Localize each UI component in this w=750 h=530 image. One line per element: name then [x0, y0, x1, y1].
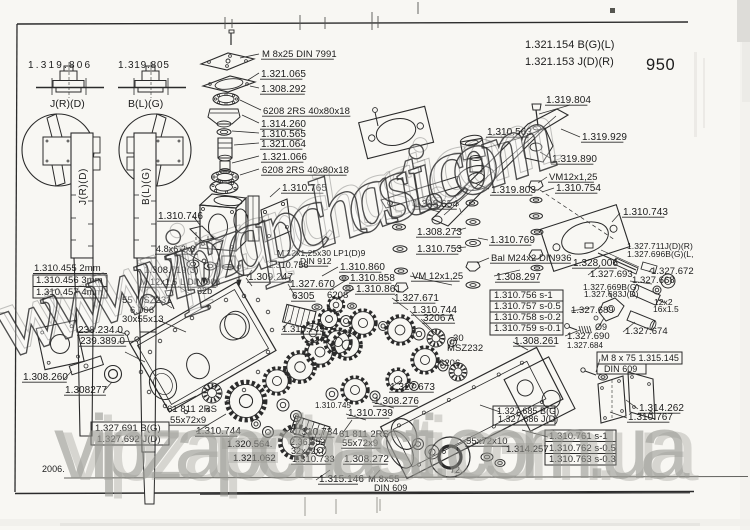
svg-text:1.310.759 s-0.1: 1.310.759 s-0.1 — [494, 323, 561, 334]
svg-text:1.327.683J(D): 1.327.683J(D) — [584, 289, 639, 299]
svg-text:1.310.745: 1.310.745 — [282, 324, 325, 335]
svg-text:1.308.297: 1.308.297 — [496, 272, 541, 283]
svg-text:1.319.805: 1.319.805 — [118, 60, 170, 71]
svg-text:1.308.261: 1.308.261 — [514, 336, 559, 347]
svg-text:B(L)(G): B(L)(G) — [128, 98, 163, 110]
svg-text:DIN 609: DIN 609 — [604, 364, 637, 374]
svg-text:1.308.260: 1.308.260 — [23, 372, 68, 383]
svg-text:1.310.769: 1.310.769 — [490, 235, 535, 246]
svg-text:1.310.753: 1.310.753 — [417, 244, 462, 255]
svg-text:1.310.858: 1.310.858 — [350, 273, 395, 284]
svg-text:1.321.065: 1.321.065 — [261, 69, 306, 80]
svg-text:1.310.743: 1.310.743 — [623, 207, 668, 218]
svg-text:1.308.292: 1.308.292 — [261, 84, 306, 95]
svg-text:1.319.929: 1.319.929 — [582, 132, 627, 143]
svg-text:1.327.673: 1.327.673 — [390, 382, 435, 393]
svg-text:1.319.804: 1.319.804 — [546, 95, 591, 106]
svg-text:1.328.006: 1.328.006 — [573, 258, 618, 269]
svg-text:3206 A: 3206 A — [423, 313, 455, 324]
svg-text:1.321.064: 1.321.064 — [261, 139, 306, 150]
svg-text:1.327.674: 1.327.674 — [625, 326, 668, 337]
svg-text:1.327.670: 1.327.670 — [290, 279, 335, 290]
svg-text:vipzapchasti.com.ua: vipzapchasti.com.ua — [63, 400, 700, 500]
svg-text:1.310.860: 1.310.860 — [340, 262, 385, 273]
svg-text:1.321.153 J(D)(R): 1.321.153 J(D)(R) — [525, 56, 614, 68]
svg-text:M 8x25 DIN 7991: M 8x25 DIN 7991 — [262, 49, 337, 60]
svg-text:950: 950 — [646, 56, 675, 74]
svg-text:B(L)(G): B(L)(G) — [141, 167, 152, 205]
svg-text:1.310.754: 1.310.754 — [556, 183, 601, 194]
svg-text:1.308277: 1.308277 — [65, 385, 107, 396]
svg-text:VM 12x1,25: VM 12x1,25 — [412, 271, 463, 282]
svg-text:1.321.154 B(G)(L): 1.321.154 B(G)(L) — [525, 39, 615, 51]
svg-text:6305: 6305 — [292, 291, 315, 302]
svg-text:6206: 6206 — [439, 358, 460, 369]
svg-text:1.327.689: 1.327.689 — [571, 305, 614, 316]
svg-text:1.310.756 s-1: 1.310.756 s-1 — [494, 290, 553, 301]
svg-text:16x1.5: 16x1.5 — [653, 304, 679, 314]
svg-text:1.327.684: 1.327.684 — [567, 341, 604, 350]
svg-text:6208: 6208 — [327, 290, 348, 301]
svg-text:1.319.890: 1.319.890 — [552, 154, 597, 165]
svg-text:M 8 x 75 1.315.145: M 8 x 75 1.315.145 — [601, 353, 679, 363]
svg-text:MSZ232: MSZ232 — [447, 343, 483, 354]
svg-text:J(R)(D): J(R)(D) — [78, 168, 89, 205]
svg-text:1.319.806: 1.319.806 — [28, 60, 92, 71]
svg-text:1.310.758 s-0.2: 1.310.758 s-0.2 — [494, 312, 561, 323]
svg-text:Bal M24x2 DIN936: Bal M24x2 DIN936 — [491, 253, 572, 264]
svg-text:J(R)(D): J(R)(D) — [50, 98, 85, 110]
svg-text:1.327.696B(G)(L,: 1.327.696B(G)(L, — [627, 249, 693, 259]
svg-text:6208 2RS 40x80x18: 6208 2RS 40x80x18 — [263, 106, 350, 117]
svg-text:1.310.757 s-0.5: 1.310.757 s-0.5 — [494, 301, 561, 312]
svg-text:1.327.693: 1.327.693 — [590, 269, 633, 280]
svg-text:1.327.671: 1.327.671 — [394, 293, 439, 304]
